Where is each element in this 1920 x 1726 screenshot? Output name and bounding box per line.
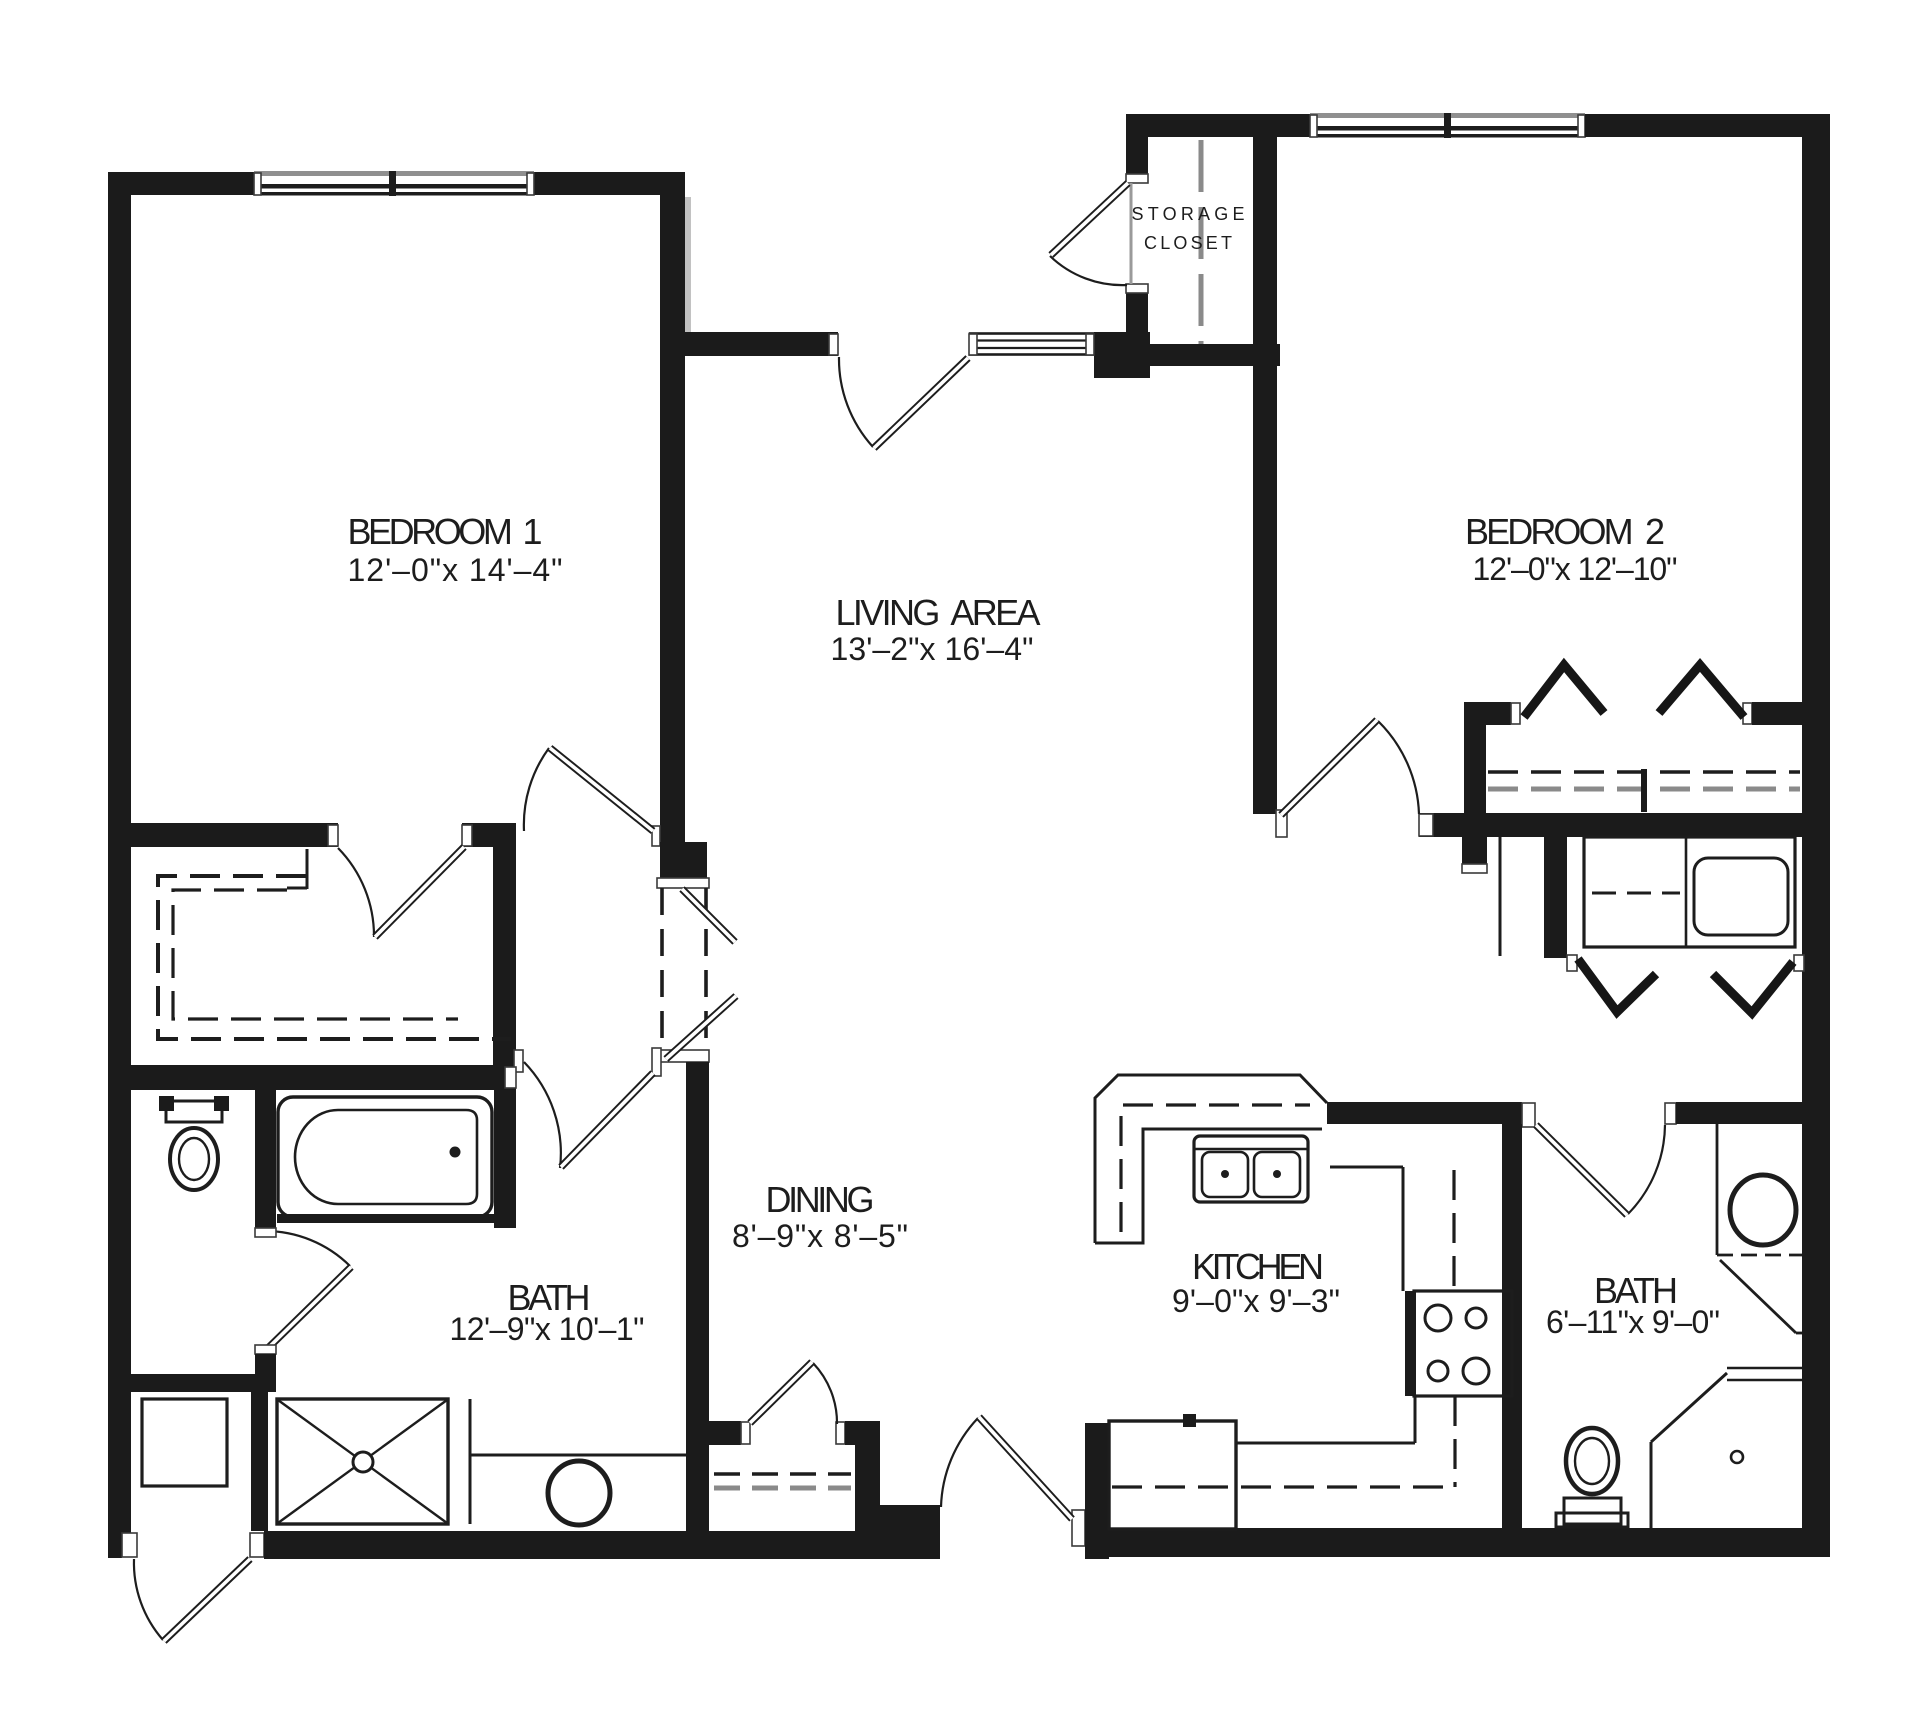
svg-text:BEDROOM 2: BEDROOM 2 bbox=[1465, 511, 1665, 552]
svg-text:12'–0"x 14'–4": 12'–0"x 14'–4" bbox=[348, 552, 563, 588]
svg-text:6'–11"x 9'–0": 6'–11"x 9'–0" bbox=[1546, 1304, 1720, 1340]
svg-text:LIVING AREA: LIVING AREA bbox=[836, 592, 1041, 633]
svg-text:12'–0"x 12'–10": 12'–0"x 12'–10" bbox=[1473, 551, 1678, 587]
svg-text:8'–9"x 8'–5": 8'–9"x 8'–5" bbox=[732, 1218, 908, 1254]
svg-text:KITCHEN: KITCHEN bbox=[1192, 1246, 1324, 1287]
svg-text:9'–0"x 9'–3": 9'–0"x 9'–3" bbox=[1172, 1283, 1340, 1319]
svg-text:13'–2"x 16'–4": 13'–2"x 16'–4" bbox=[831, 631, 1034, 667]
svg-text:DINING: DINING bbox=[766, 1179, 875, 1220]
svg-text:BEDROOM 1: BEDROOM 1 bbox=[348, 511, 543, 552]
svg-text:STORAGE: STORAGE bbox=[1132, 204, 1245, 224]
svg-text:12'–9"x 10'–1": 12'–9"x 10'–1" bbox=[450, 1311, 645, 1347]
